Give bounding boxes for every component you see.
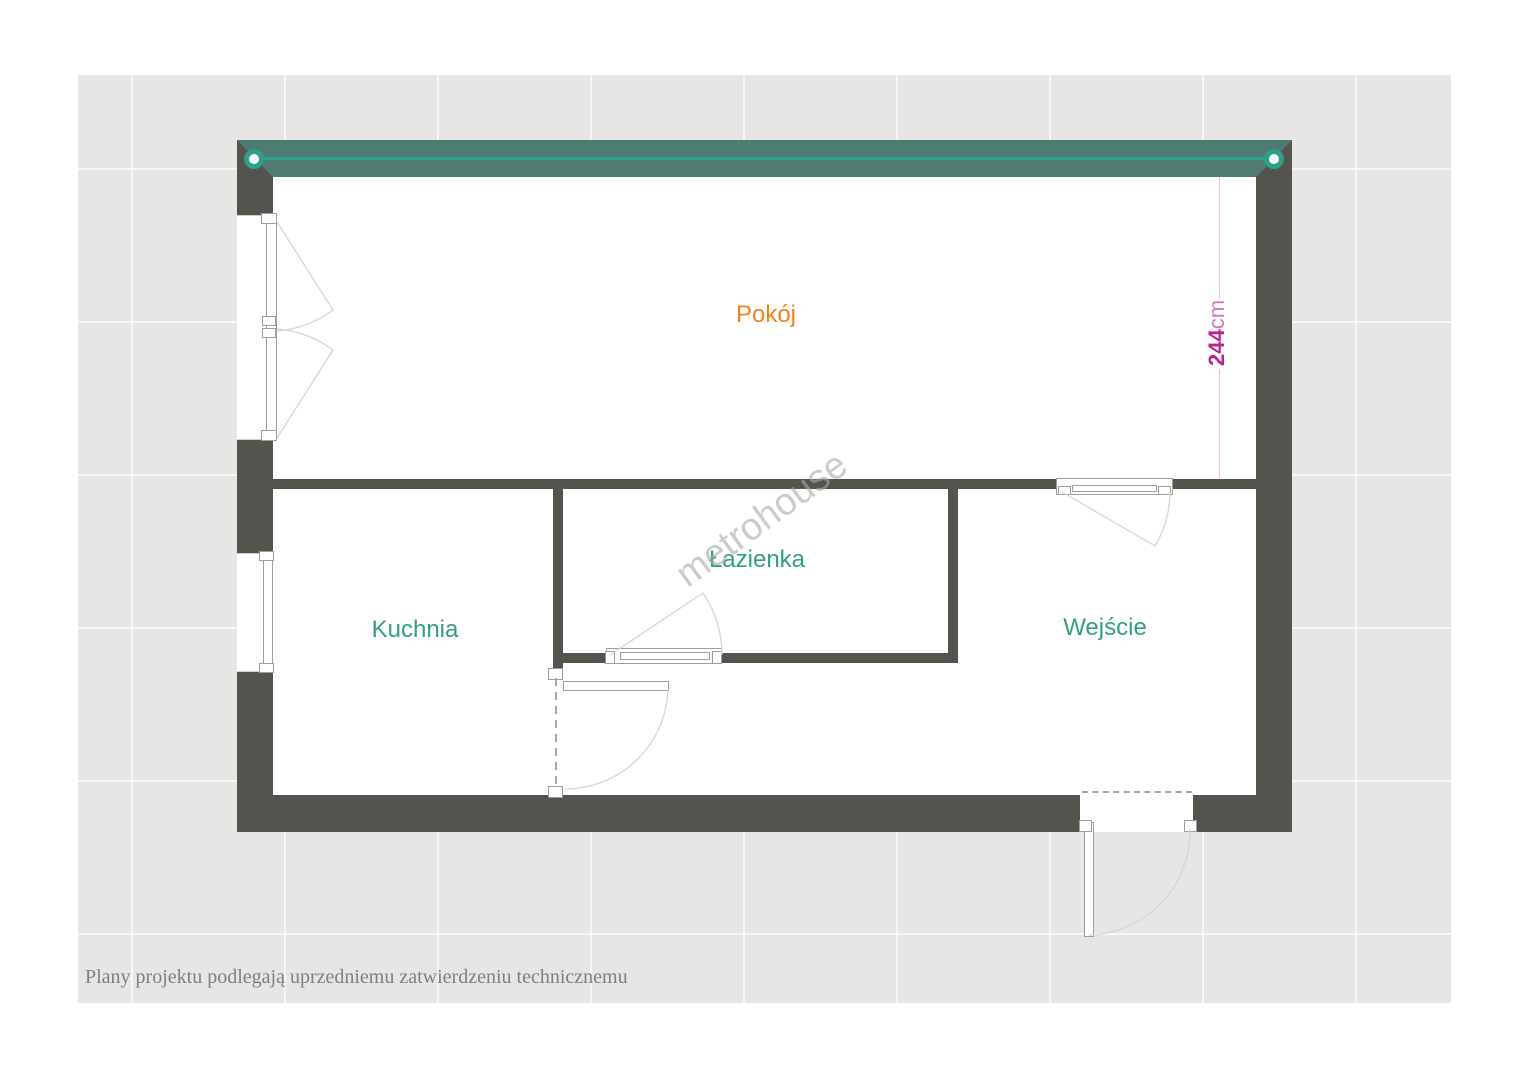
entrance-opening — [1080, 795, 1193, 832]
dimension-line-upper — [1219, 177, 1220, 298]
kitchen-door-leaf — [563, 681, 669, 691]
entrance-door-leaf — [1084, 822, 1094, 937]
rail-post-right — [1264, 149, 1284, 169]
kitchen-window-jamb-top — [259, 551, 274, 561]
bathroom-door-leaf — [620, 652, 710, 660]
room-label-wejscie: Wejście — [1063, 614, 1147, 642]
balcony-door-jamb-bottom — [261, 430, 277, 441]
dimension-unit: cm — [1204, 300, 1229, 329]
bathroom-door-jamb-left — [605, 651, 615, 664]
dimension-line-lower — [1219, 369, 1220, 478]
room-label-kuchnia: Kuchnia — [372, 616, 459, 644]
wall-pokoj-bottom-left — [273, 479, 1057, 489]
entrance-door-jamb-left — [1079, 820, 1092, 832]
balcony-door-meeting-stile-top — [262, 316, 276, 326]
wall-right — [1256, 140, 1292, 832]
footer-note: Plany projektu podlegają uprzedniemu zat… — [85, 966, 628, 989]
hall-door-block-left — [1058, 486, 1071, 495]
kitchen-window-frame — [263, 556, 273, 669]
wall-pokoj-bottom-right — [1171, 479, 1256, 489]
balcony-door-meeting-stile-bottom — [262, 328, 276, 338]
hall-door-leaf — [1072, 485, 1157, 492]
kitchen-door-jamb-bottom — [548, 786, 563, 798]
kitchen-window-jamb-bottom — [259, 663, 274, 673]
balcony-rail-line — [253, 157, 1273, 160]
entrance-threshold-dashed — [1082, 791, 1192, 793]
dimension-label: 244cm — [1204, 300, 1230, 366]
kitchen-door-jamb-top — [548, 668, 563, 680]
bathroom-door-jamb-right — [712, 651, 722, 664]
entrance-door-jamb-right — [1184, 820, 1197, 832]
wall-kitchen-bath — [553, 489, 563, 678]
wall-bath-bottom-right — [722, 653, 958, 663]
hall-door-block-right — [1158, 486, 1171, 495]
wall-bath-right — [948, 489, 958, 663]
floorplan-page: 244cm Pokój Łazienka Kuchnia Wejście met… — [0, 0, 1528, 1080]
rail-post-left — [244, 149, 264, 169]
dimension-value: 244 — [1204, 329, 1229, 366]
room-label-pokoj: Pokój — [736, 301, 796, 329]
balcony-door-jamb-top — [261, 213, 277, 224]
wall-bath-bottom-left — [553, 653, 608, 663]
